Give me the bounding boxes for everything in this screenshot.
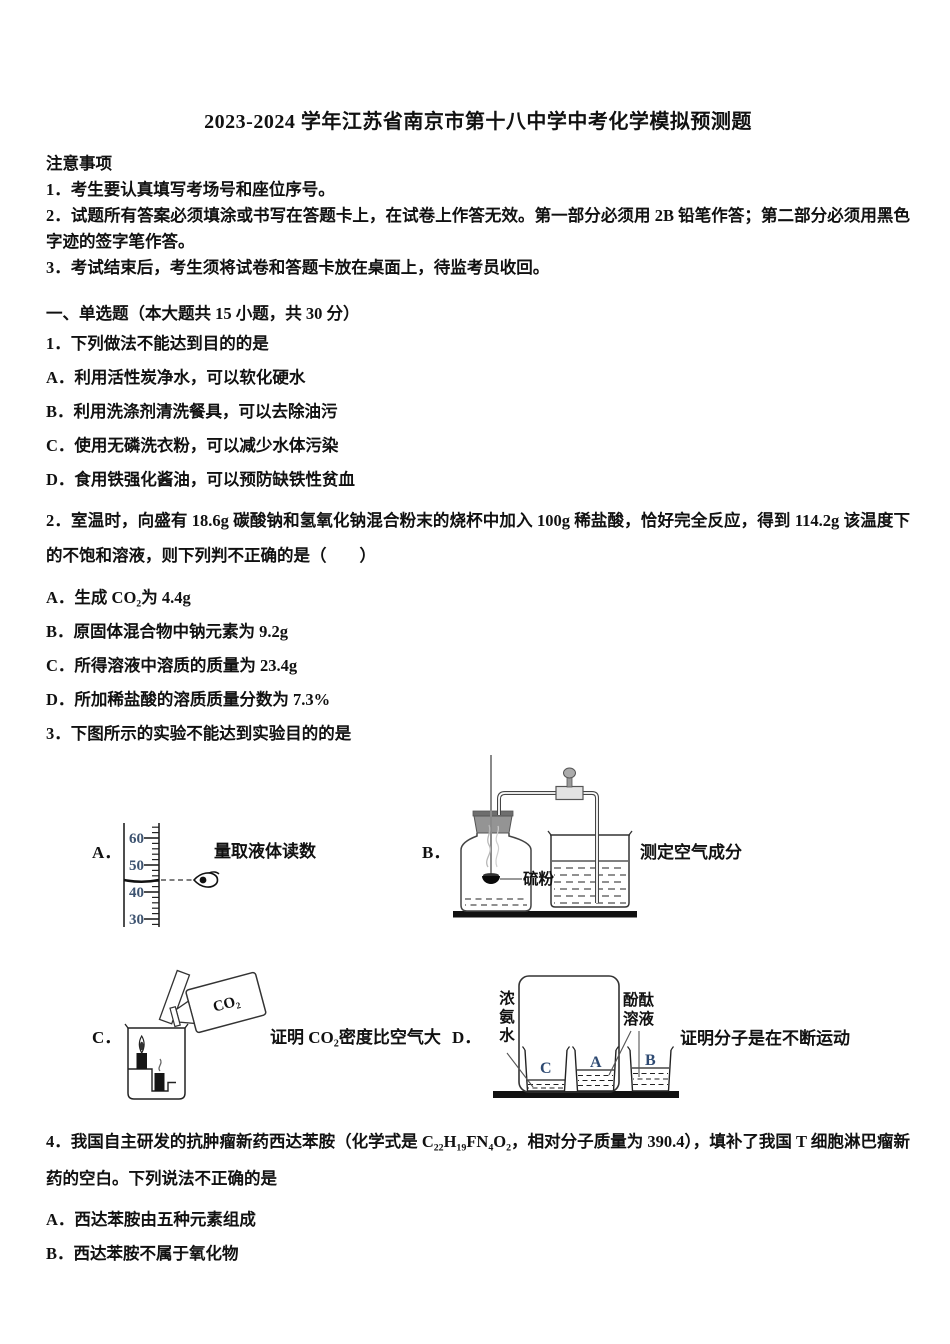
exam-paper-page: 2023-2024 学年江苏省南京市第十八中学中考化学模拟预测题 注意事项 1．… — [0, 0, 950, 1344]
beaker-b-label: B — [645, 1052, 656, 1069]
q2-option-c: C．所得溶液中溶质的质量为 23.4g — [46, 653, 910, 679]
q4-option-b: B．西达苯胺不属于氧化物 — [46, 1241, 910, 1267]
figure-a-caption: 量取液体读数 — [214, 843, 316, 861]
cylinder-scale-50: 50 — [129, 858, 144, 874]
gas-bottle — [461, 833, 531, 911]
cylinder-scale-40: 40 — [129, 885, 144, 901]
section-heading: 一、单选题（本大题共 15 小题，共 30 分） — [46, 301, 910, 327]
bell-jar — [519, 976, 619, 1092]
q2-option-d: D．所加稀盐酸的溶质质量分数为 7.3% — [46, 687, 910, 713]
co2-density-figure: CO₂ — [124, 969, 274, 1107]
cylinder-scale-60: 60 — [129, 831, 144, 847]
phenolphthalein-label: 酚酞溶液 — [623, 991, 657, 1029]
figure-d-letter: D． — [452, 1029, 481, 1046]
q2-stem: 2．室温时，向盛有 18.6g 碳酸钠和氢氧化钠混合粉末的烧杯中加入 100g … — [46, 503, 910, 573]
page-title: 2023-2024 学年江苏省南京市第十八中学中考化学模拟预测题 — [46, 110, 910, 134]
liquid-meniscus — [124, 880, 159, 882]
stopcock-valve — [556, 768, 583, 800]
notice-item-2: 2．试题所有答案必须填涂或书写在答题卡上，在试卷上作答无效。第一部分必须用 2B… — [46, 203, 910, 255]
molecule-motion-figure: C A — [491, 969, 686, 1107]
notice-item-1: 1．考生要认真填写考场号和座位序号。 — [46, 177, 910, 203]
notice-heading: 注意事项 — [46, 151, 910, 177]
notice-section: 注意事项 1．考生要认真填写考场号和座位序号。 2．试题所有答案必须填涂或书写在… — [46, 151, 910, 281]
figure-b-letter: B． — [422, 844, 450, 861]
q3-stem: 3．下图所示的实验不能达到实验目的的是 — [46, 721, 910, 747]
q4-option-a: A．西达苯胺由五种元素组成 — [46, 1207, 910, 1233]
figure-d-caption: 证明分子是在不断运动 — [680, 1030, 850, 1048]
bench-line — [453, 911, 637, 918]
q3-figure-area: A． — [46, 753, 910, 1119]
short-candle — [155, 1059, 165, 1091]
q1-stem: 1．下列做法不能达到目的的是 — [46, 331, 910, 357]
rubber-stopper — [473, 811, 513, 833]
figure-c-letter: C． — [92, 1029, 121, 1046]
exam-content: 2023-2024 学年江苏省南京市第十八中学中考化学模拟预测题 注意事项 1．… — [0, 0, 950, 1267]
q2-option-a: A．生成 CO₂为 4.4g — [46, 585, 910, 611]
water-beaker — [548, 831, 632, 907]
q1-option-b: B．利用洗涤剂清洗餐具，可以去除油污 — [46, 399, 910, 425]
notice-item-3: 3．考试结束后，考生须将试卷和答题卡放在桌面上，待监考员收回。 — [46, 255, 910, 281]
sulfur-label: 硫粉 — [523, 869, 555, 888]
ammonia-pointer-line — [507, 1053, 533, 1087]
cylinder-scale-30: 30 — [129, 912, 144, 928]
figure-c-caption: 证明 CO₂密度比空气大 — [270, 1029, 441, 1047]
q2-option-b: B．原固体混合物中钠元素为 9.2g — [46, 619, 910, 645]
figure-b-caption: 测定空气成分 — [640, 844, 742, 862]
q1-option-d: D．食用铁强化酱油，可以预防缺铁性贫血 — [46, 467, 910, 493]
tall-candle — [137, 1036, 148, 1069]
graduated-cylinder-figure: 60 50 40 30 — [116, 821, 236, 935]
q1-option-c: C．使用无磷洗衣粉，可以减少水体污染 — [46, 433, 910, 459]
smoke-curl — [159, 1059, 161, 1071]
candle-steps — [128, 1069, 176, 1091]
beaker-a-label: A — [590, 1054, 602, 1071]
beaker-c-label: C — [540, 1060, 552, 1077]
air-composition-figure: 硫粉 — [451, 753, 641, 923]
q1-option-a: A．利用活性炭净水，可以软化硬水 — [46, 365, 910, 391]
q4-stem: 4．我国自主研发的抗肿瘤新药西达苯胺（化学式是 C₂₂H₁₉FN₄O₂，相对分子… — [46, 1123, 910, 1197]
phenolphthalein-pointer-line-a — [609, 1031, 631, 1075]
eye-icon — [194, 872, 219, 887]
ammonia-label: 浓氨水 — [497, 990, 514, 1046]
